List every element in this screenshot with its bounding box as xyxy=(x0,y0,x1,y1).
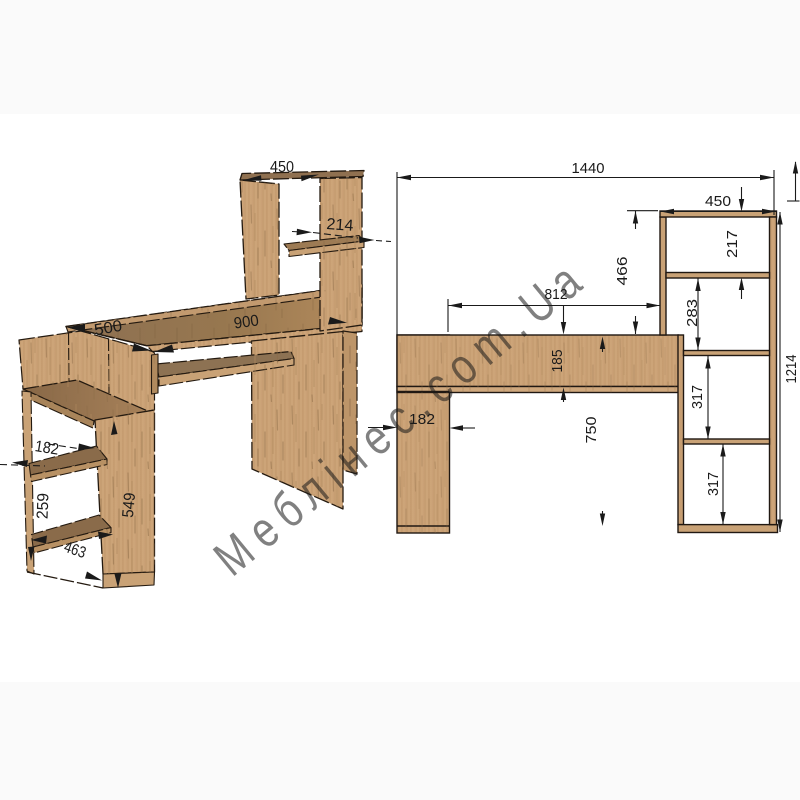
svg-text:317: 317 xyxy=(705,472,722,496)
svg-text:466: 466 xyxy=(614,257,631,286)
svg-text:1214: 1214 xyxy=(783,355,800,384)
svg-text:259: 259 xyxy=(35,493,53,520)
svg-text:317: 317 xyxy=(689,385,706,409)
svg-text:185: 185 xyxy=(549,350,566,373)
svg-text:900: 900 xyxy=(233,312,260,332)
svg-text:450: 450 xyxy=(270,159,294,176)
svg-text:217: 217 xyxy=(724,230,741,258)
svg-text:750: 750 xyxy=(583,417,600,444)
svg-text:214: 214 xyxy=(326,216,354,235)
svg-text:450: 450 xyxy=(705,193,731,210)
svg-text:549: 549 xyxy=(120,492,139,518)
svg-text:1440: 1440 xyxy=(572,160,605,177)
svg-text:283: 283 xyxy=(684,299,701,327)
